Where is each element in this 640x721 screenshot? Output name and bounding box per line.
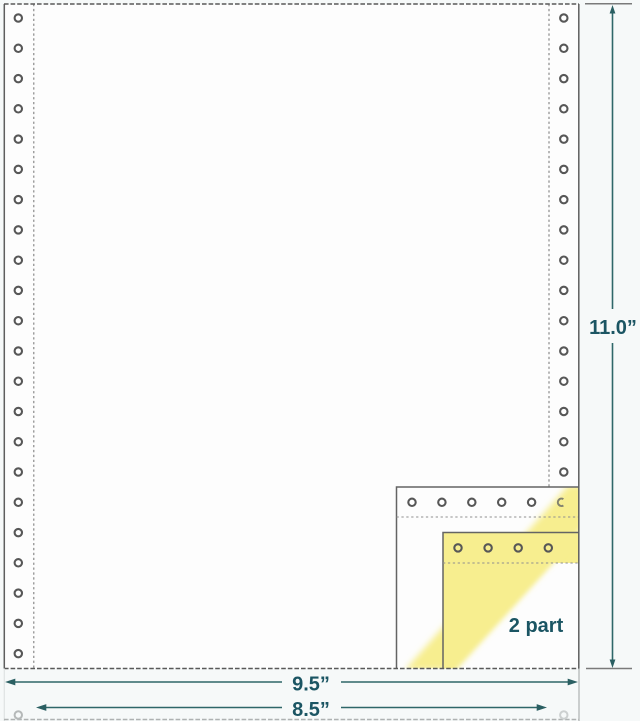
svg-text:11.0”: 11.0” [589,317,637,339]
svg-text:2 part: 2 part [509,615,564,637]
svg-text:8.5”: 8.5” [292,699,330,721]
svg-text:9.5”: 9.5” [292,674,330,696]
